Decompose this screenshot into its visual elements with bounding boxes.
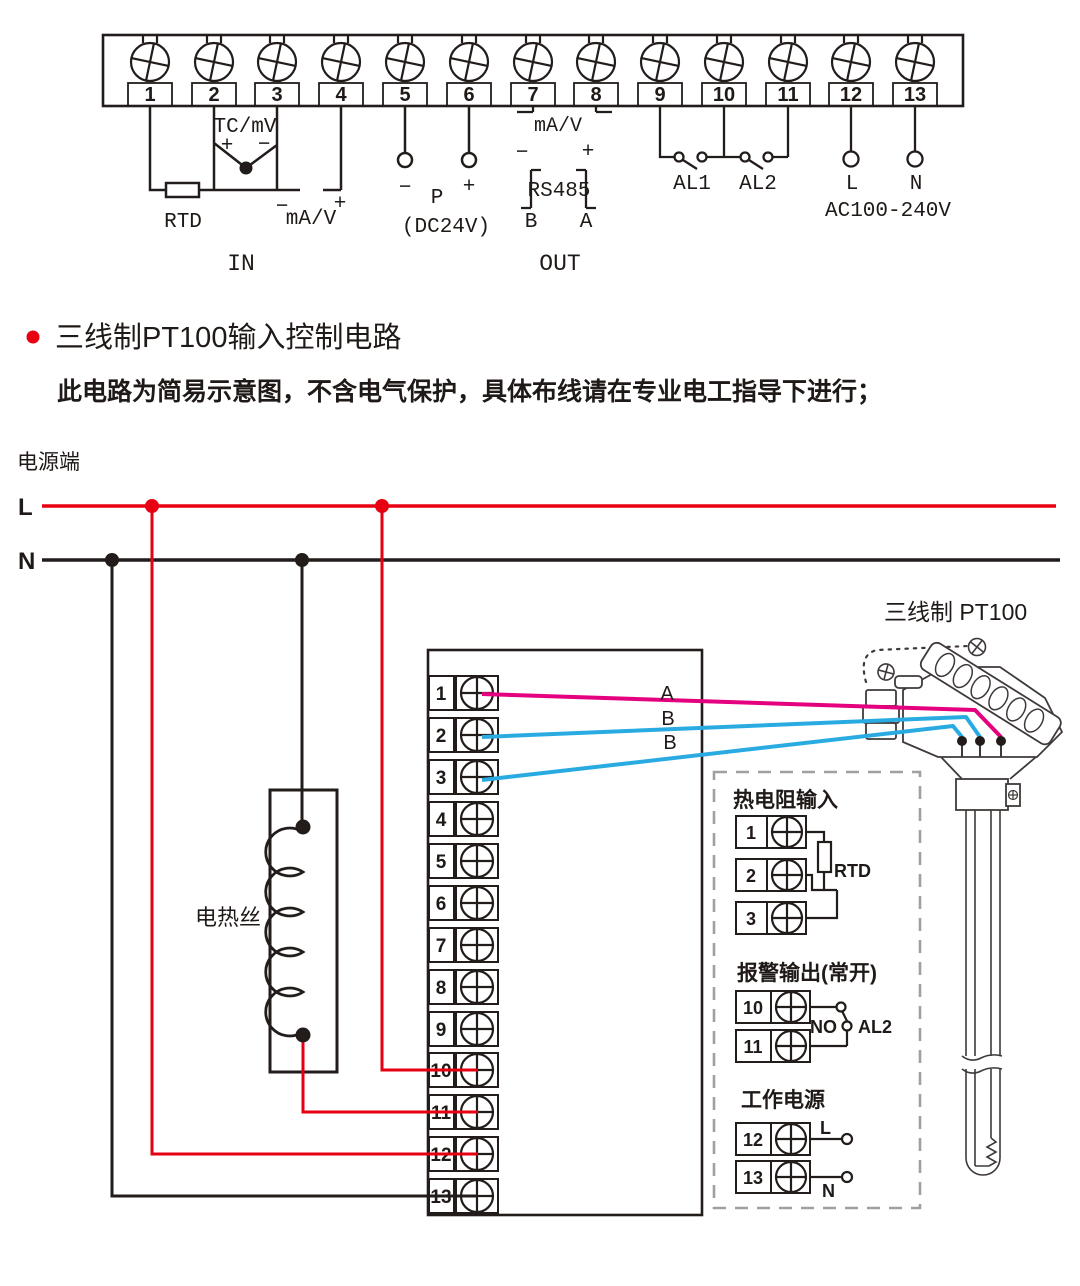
n-rail-label: N (18, 548, 35, 575)
power-rails: 电源端 L N (17, 451, 1060, 575)
head-terminal-dot (957, 736, 967, 746)
bullet-icon (27, 331, 40, 344)
input-wiring (150, 106, 476, 197)
screw-icon (461, 761, 493, 793)
plus-sign: + (221, 135, 234, 158)
plus-sign: + (463, 176, 476, 199)
p-label: P (431, 187, 444, 210)
no-label: NO (810, 1017, 837, 1037)
screw-icon (765, 35, 810, 85)
al1-contact (698, 153, 707, 162)
heater-wire-to-11 (303, 1038, 478, 1112)
sensing-element (975, 1138, 996, 1166)
screw-icon (701, 35, 746, 85)
power-contact (842, 1134, 852, 1144)
screw-icon (776, 992, 806, 1022)
screw-icon (127, 35, 172, 85)
terminal-number: 11 (743, 1037, 762, 1057)
terminal-number: 2 (436, 726, 447, 747)
l-terminal (844, 152, 859, 167)
rtd-input-title: 热电阻输入 (733, 788, 838, 812)
terminal-number: 1 (144, 84, 155, 106)
power-cell-numbers: 12 13 (743, 1130, 763, 1188)
section-heading: 三线制PT100输入控制电路 此电路为简易示意图，不含电气保护，具体布线请在专业… (27, 321, 883, 406)
ma-v-in-label: mA/V (286, 208, 337, 231)
al1-contact (675, 153, 684, 162)
probe-tube (962, 810, 1002, 1175)
rs485-b-label: B (525, 211, 538, 234)
wire-a-label: A (660, 683, 674, 705)
lid-screw-icon (876, 662, 896, 682)
lid-screw-icon (965, 635, 989, 659)
section-note: 此电路为简易示意图，不含电气保护，具体布线请在专业电工指导下进行； (57, 377, 882, 406)
entry-cap (895, 676, 922, 688)
terminal-number: 5 (399, 84, 410, 106)
screw-icon (892, 35, 937, 85)
terminal-number: 6 (463, 84, 474, 106)
wire-labels: A B B (660, 683, 676, 754)
head-terminal-dot (996, 736, 1006, 746)
rail-junctions (105, 499, 389, 1043)
n-wire-to-13 (112, 560, 478, 1196)
terminal-number: 8 (436, 978, 447, 999)
screw-icon (828, 35, 873, 85)
screw-icon (461, 803, 493, 835)
switch-contact (837, 1003, 846, 1012)
terminal-number: 13 (743, 1168, 763, 1188)
screw-icon (772, 860, 802, 890)
out-label: OUT (539, 251, 580, 277)
rtd-cell-numbers: 1 2 3 (746, 823, 756, 929)
heater-terminal-dot (296, 820, 311, 835)
power-contact (842, 1172, 852, 1182)
screw-icon (461, 845, 493, 877)
head-terminal-dot (975, 736, 985, 746)
al2-label: AL2 (858, 1017, 892, 1037)
terminal-number: 3 (436, 768, 447, 789)
wiring-diagram: 1 2 3 4 5 6 7 8 9 10 11 12 13 (0, 0, 1080, 1286)
al2-label: AL2 (739, 173, 777, 196)
section-title: 三线制PT100输入控制电路 (55, 321, 401, 354)
alarm-output-title: 报警输出(常开) (737, 961, 877, 985)
top-terminal-block: 1 2 3 4 5 6 7 8 9 10 11 12 13 (103, 35, 963, 277)
junction-dot (145, 499, 159, 513)
minus-sign: − (516, 142, 529, 165)
terminal-number: 1 (436, 684, 447, 705)
sensor-title: 三线制 PT100 (884, 599, 1027, 625)
terminal-number: 3 (746, 909, 756, 929)
clamp-screw-icon (1009, 791, 1018, 800)
rtd-label: RTD (834, 861, 871, 881)
screw-icon (776, 1124, 806, 1154)
heater: 电热丝 (195, 790, 337, 1072)
al1-label: AL1 (673, 173, 711, 196)
junction-dot (105, 553, 119, 567)
terminal-number: 12 (840, 84, 862, 106)
ma-v-out-label: mA/V (534, 115, 582, 138)
heater-label: 电热丝 (195, 905, 261, 930)
terminal-number: 9 (654, 84, 665, 106)
wiring-diagram-page: 1 2 3 4 5 6 7 8 9 10 11 12 13 (0, 0, 1080, 1286)
rs485-a-label: A (580, 211, 593, 234)
rtd-wiring (806, 832, 837, 918)
al2-contact (741, 153, 750, 162)
wire-b-label: B (663, 732, 676, 754)
tc-junction-dot (240, 162, 253, 175)
screw-icon (772, 817, 802, 847)
plus-sign: + (582, 141, 595, 164)
rs485-label: RS485 (527, 180, 590, 203)
line-label: L (846, 173, 859, 196)
minus-sign: − (399, 177, 412, 200)
p-plus-terminal (462, 153, 476, 167)
sensor-neck (941, 757, 1036, 779)
inset-l-label: L (820, 1118, 831, 1138)
screw-icon (318, 35, 363, 85)
dc24v-label: (DC24V) (402, 216, 490, 239)
screw-icon (461, 929, 493, 961)
wires (112, 506, 1001, 1196)
terminal-number: 3 (271, 84, 282, 106)
terminal-number: 11 (777, 84, 798, 106)
sensor-collar (956, 779, 1008, 810)
working-power-title: 工作电源 (741, 1088, 825, 1112)
junction-dot (295, 553, 309, 567)
screw-icon (461, 887, 493, 919)
screw-icon (510, 35, 555, 85)
screw-icon (461, 971, 493, 1003)
alarm-cell-numbers: 10 11 (743, 998, 763, 1057)
strip-screws (461, 677, 493, 1212)
terminal-number: 10 (713, 84, 735, 106)
heater-terminal-dot (296, 1028, 311, 1043)
terminal-number: 2 (208, 84, 219, 106)
terminal-number: 4 (436, 810, 447, 831)
wire-b-label: B (661, 708, 674, 730)
screw-icon (254, 35, 299, 85)
terminal-number: 9 (436, 1020, 447, 1041)
terminal-number: 7 (527, 84, 538, 106)
terminal-number: 12 (743, 1130, 763, 1150)
screw-icon (573, 35, 618, 85)
junction-dot (375, 499, 389, 513)
screw-icon (776, 1162, 806, 1192)
terminal-number: 13 (904, 84, 926, 106)
power-terminal-label: 电源端 (17, 451, 80, 474)
l-rail-label: L (18, 494, 33, 521)
al2-contact (764, 153, 773, 162)
terminal-number: 1 (746, 823, 756, 843)
in-label: IN (227, 251, 255, 277)
terminal-number: 10 (743, 998, 763, 1018)
rtd-resistor (818, 842, 831, 872)
connection-inset: 热电阻输入 1 2 3 RTD 报警输出(常开) 10 11 (714, 772, 920, 1208)
ac-voltage-label: AC100-240V (825, 200, 951, 223)
top-terminal-numbers: 1 2 3 4 5 6 7 8 9 10 11 12 13 (144, 84, 926, 106)
screw-icon (772, 903, 802, 933)
screw-icon (637, 35, 682, 85)
terminal-number: 7 (436, 936, 447, 957)
screw-icon (776, 1031, 806, 1061)
rtd-resistor (166, 183, 199, 197)
switch-contact (843, 1022, 852, 1031)
screw-icon (382, 35, 427, 85)
inset-n-label: N (822, 1181, 835, 1201)
plus-sign: + (334, 193, 347, 216)
screw-icon (461, 1013, 493, 1045)
top-terminal-screws (127, 35, 937, 85)
minus-sign: − (258, 134, 271, 157)
screw-icon (446, 35, 491, 85)
terminal-number: 2 (746, 866, 756, 886)
top-block-labels: TC/mV + − RTD − mA/V + IN − + P (DC24V) … (164, 115, 951, 277)
power-wiring (810, 1134, 852, 1182)
n-terminal (908, 152, 923, 167)
neutral-label: N (910, 173, 923, 196)
rtd-label: RTD (164, 211, 202, 234)
p-minus-terminal (398, 153, 412, 167)
screw-icon (191, 35, 236, 85)
terminal-number: 5 (436, 852, 447, 873)
tube-break (962, 1055, 1002, 1073)
terminal-number: 8 (590, 84, 601, 106)
terminal-number: 4 (335, 84, 347, 106)
terminal-number: 6 (436, 894, 447, 915)
